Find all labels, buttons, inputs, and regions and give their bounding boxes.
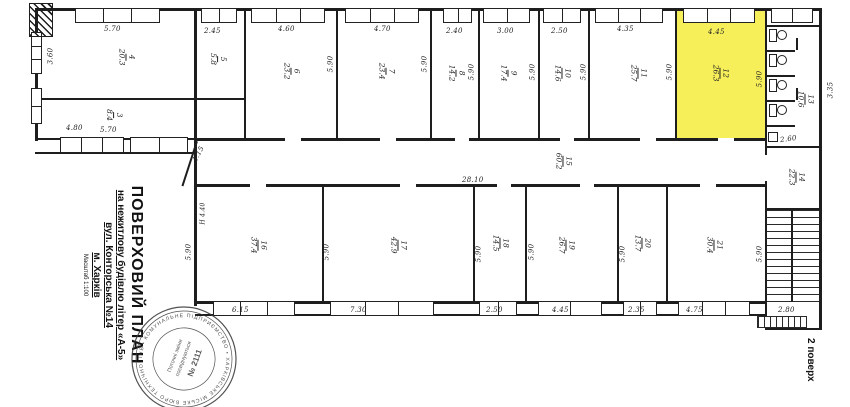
room-label-19: 1926.7 [557, 237, 575, 254]
door-opening [455, 138, 469, 141]
room-label-10: 1014.6 [553, 65, 571, 82]
dim-corridor-length: 28.10 [462, 176, 484, 184]
room-label-12: 1226.3 [711, 65, 729, 82]
dim-bottom-room16: 6.15 [232, 306, 249, 314]
wc-stall-divider [767, 100, 795, 102]
dim-top-room7: 4.70 [374, 25, 391, 33]
door-opening [560, 138, 574, 141]
wall-partition [666, 187, 668, 303]
room-label-9: 917.4 [499, 65, 517, 82]
wall-wc-top [767, 25, 819, 27]
door-opening [765, 155, 767, 181]
wall-partition [244, 10, 246, 140]
dim-wc-side: 3.35 [826, 82, 834, 99]
hatched-block [29, 3, 53, 37]
door-opening [250, 184, 266, 187]
room-label-15: 1560.2 [554, 153, 572, 170]
dim-top-room12: 4.45 [708, 28, 725, 36]
room-label-4: 420.3 [117, 49, 135, 66]
wall-corridor-bottom [195, 184, 765, 187]
window-symbol [683, 8, 755, 23]
room-label-3: 38.4 [105, 109, 123, 121]
level-mark: Н 4.40 [200, 202, 207, 224]
door-opening [700, 184, 716, 187]
title-city: м. Харків [91, 150, 102, 400]
door-opening [580, 184, 594, 187]
sink-icon [768, 132, 778, 142]
door-opening [497, 184, 511, 187]
dim-height-room19: 5.90 [527, 244, 535, 261]
door-opening [285, 138, 301, 141]
door-opening [718, 138, 734, 141]
dim-height-room18: 5.90 [474, 246, 482, 263]
room-label-17: 1742.9 [389, 237, 407, 254]
window-symbol [251, 8, 325, 23]
toilet-icon [769, 54, 787, 67]
staircase [767, 210, 819, 302]
dim-height-room6: 5.90 [326, 56, 334, 73]
dim-height-room10: 5.90 [579, 64, 587, 81]
dim-top-room9: 3.00 [497, 27, 514, 35]
dim-bottom-room21: 4.75 [686, 306, 703, 314]
dim-wc-width: 2.60 [780, 134, 798, 144]
dim-top-room6: 4.60 [278, 25, 295, 33]
room-label-21: 2130.4 [705, 237, 723, 254]
dim-top-room10: 2.50 [551, 27, 568, 35]
door-opening [640, 138, 656, 141]
dim-bottom-room17: 7.30 [350, 306, 367, 314]
dim-height-room11: 5.90 [665, 64, 673, 81]
window-symbol [201, 8, 237, 23]
room-label-6: 623.2 [282, 63, 300, 80]
room-label-16: 1637.4 [249, 237, 267, 254]
window-symbol [75, 8, 160, 23]
window-symbol [31, 88, 42, 124]
toilet-icon [769, 79, 787, 92]
dim-height-room7: 5.90 [420, 56, 428, 73]
window-symbol [538, 301, 602, 316]
room-label-13: 1310.6 [796, 91, 814, 108]
title-scale: Масштаб 1:100 [82, 150, 88, 400]
dim-top-room8: 2.40 [446, 27, 463, 35]
dim-height-room17: 5.90 [322, 244, 330, 261]
dim-bottom-room20: 2.35 [628, 306, 645, 314]
staircase-center-line [791, 210, 793, 302]
wall-partition [538, 10, 540, 140]
window-symbol [543, 8, 581, 23]
floor-plan-sheet: 420.3 38.4 55.8 623.2 723.4 814.2 917.4 … [0, 0, 850, 407]
entry-steps [757, 316, 807, 328]
wall-partition [675, 10, 677, 140]
wall-partition [336, 10, 338, 140]
dim-stair-width: 2.80 [778, 306, 795, 314]
wall-partition [37, 98, 195, 100]
dim-height-room9: 5.90 [528, 64, 536, 81]
dim-bottom-room18: 2.50 [486, 306, 503, 314]
dim-height-room12: 5.90 [755, 71, 763, 88]
window-symbol [330, 301, 434, 316]
window-symbol [483, 8, 530, 23]
wall-corridor-top [195, 138, 765, 141]
wc-stall-divider [767, 50, 795, 52]
door-opening [400, 184, 416, 187]
room-label-20: 2013.7 [633, 235, 651, 252]
dim-height-room21: 5.90 [755, 246, 763, 263]
dim-height-room16: 5.90 [184, 244, 192, 261]
wc-stall-divider [767, 75, 795, 77]
dim-top-room5: 2.45 [204, 27, 221, 35]
wc-stall-divider [767, 125, 795, 127]
dim-top-room4: 5.70 [104, 25, 121, 33]
door-opening [380, 138, 396, 141]
dim-height-room20: 5.90 [618, 246, 626, 263]
toilet-icon [769, 29, 787, 42]
wall-partition [588, 10, 590, 140]
room-label-5: 55.8 [209, 53, 227, 65]
toilet-icon [769, 104, 787, 117]
room-label-7: 723.4 [377, 63, 395, 80]
dim-bottom-room19: 4.45 [552, 306, 569, 314]
window-symbol [31, 32, 42, 74]
room-label-14: 1422.3 [787, 169, 805, 186]
room-label-8: 814.2 [447, 65, 465, 82]
wall-partition [478, 10, 480, 140]
window-symbol [443, 8, 472, 23]
window-symbol [595, 8, 663, 23]
window-symbol [771, 8, 813, 23]
dim-left-room4: 3.60 [46, 48, 54, 65]
dim-room3-extra: 4.80 [66, 124, 83, 132]
wall-partition [430, 10, 432, 140]
wc-stall-front [796, 38, 798, 50]
dim-height-room8: 5.90 [467, 64, 475, 81]
wall-right-outer [819, 8, 822, 330]
dim-top-room11: 4.35 [617, 25, 634, 33]
wall-rightcol-bottom [765, 328, 822, 330]
window-symbol [345, 8, 419, 23]
dim-room3-width: 5.70 [100, 126, 117, 134]
wall-wc-bottom [767, 146, 819, 148]
wall-partition [196, 98, 244, 100]
title-address: вул. Конторська №14 [103, 150, 114, 400]
floor-note: 2 поверх [805, 338, 816, 382]
room-label-18: 1814.5 [491, 235, 509, 252]
room-label-11: 1125.7 [629, 65, 647, 82]
